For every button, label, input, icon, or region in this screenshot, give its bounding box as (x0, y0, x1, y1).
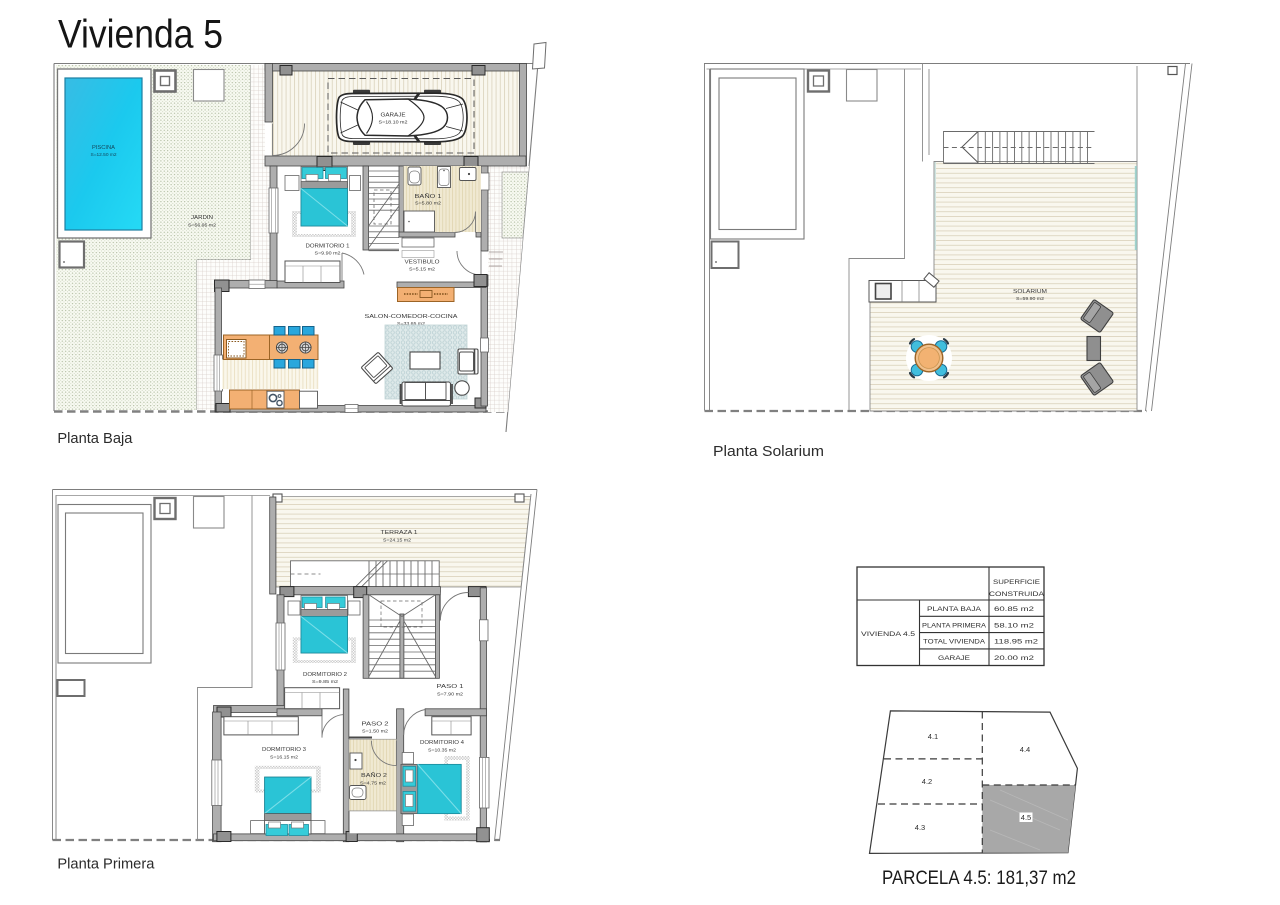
svg-text:DORMITORIO 4: DORMITORIO 4 (420, 740, 464, 746)
svg-text:S=9.85 m2: S=9.85 m2 (312, 679, 339, 684)
svg-text:PLANTA BAJA: PLANTA BAJA (927, 606, 982, 613)
svg-text:S=16.15 m2: S=16.15 m2 (270, 755, 299, 760)
svg-text:S=7.90 m2: S=7.90 m2 (437, 692, 464, 697)
svg-text:S=56.95 m2: S=56.95 m2 (188, 223, 217, 228)
svg-text:BAÑO 1: BAÑO 1 (415, 193, 442, 200)
svg-text:SOLARIUM: SOLARIUM (1013, 289, 1047, 295)
svg-text:PARCELA 4.5: 181,37 m2: PARCELA 4.5: 181,37 m2 (882, 868, 1076, 889)
svg-text:PLANTA PRIMERA: PLANTA PRIMERA (922, 622, 987, 629)
svg-text:JARDIN: JARDIN (191, 215, 213, 221)
svg-text:S=9.90 m2: S=9.90 m2 (315, 251, 342, 256)
svg-text:DORMITORIO 1: DORMITORIO 1 (306, 244, 350, 250)
svg-text:S=59.90 m2: S=59.90 m2 (1016, 296, 1045, 301)
svg-text:S=5.15 m2: S=5.15 m2 (409, 267, 436, 272)
svg-text:VIVIENDA 4.5: VIVIENDA 4.5 (861, 631, 915, 638)
svg-text:S=18.10 m2: S=18.10 m2 (379, 120, 409, 125)
svg-text:PASO 2: PASO 2 (362, 722, 389, 728)
svg-text:S=24.15 m2: S=24.15 m2 (383, 538, 412, 543)
svg-text:BAÑO 2: BAÑO 2 (361, 772, 387, 779)
svg-text:SALON-COMEDOR-COCINA: SALON-COMEDOR-COCINA (365, 314, 459, 320)
svg-text:TERRAZA 1: TERRAZA 1 (381, 530, 418, 536)
svg-text:Planta Baja: Planta Baja (57, 430, 133, 447)
svg-text:S=5.80 m2: S=5.80 m2 (415, 201, 442, 206)
svg-text:S=1.50 m2: S=1.50 m2 (362, 729, 389, 734)
svg-text:CONSTRUIDA: CONSTRUIDA (989, 591, 1045, 598)
svg-text:S=10.35 m2: S=10.35 m2 (428, 748, 457, 753)
svg-text:4.4: 4.4 (1020, 745, 1030, 754)
svg-text:4.5: 4.5 (1021, 813, 1031, 822)
svg-text:PISCINA: PISCINA (92, 145, 116, 151)
svg-text:118.95 m2: 118.95 m2 (994, 639, 1038, 646)
svg-text:20.00 m2: 20.00 m2 (994, 655, 1034, 662)
svg-text:DORMITORIO 3: DORMITORIO 3 (262, 747, 306, 753)
svg-text:DORMITORIO 2: DORMITORIO 2 (303, 672, 347, 678)
svg-text:SUPERFICIE: SUPERFICIE (993, 579, 1041, 586)
svg-text:Vivienda 5: Vivienda 5 (58, 13, 223, 57)
svg-text:PASO 1: PASO 1 (437, 684, 464, 690)
svg-text:Planta Solarium: Planta Solarium (713, 443, 824, 460)
svg-text:58.10 m2: 58.10 m2 (994, 622, 1034, 629)
svg-text:GARAJE: GARAJE (938, 655, 971, 662)
svg-text:S=4.75 m2: S=4.75 m2 (360, 781, 387, 786)
svg-text:4.3: 4.3 (915, 823, 925, 832)
svg-text:4.2: 4.2 (922, 777, 932, 786)
svg-text:4.1: 4.1 (928, 732, 938, 741)
svg-text:Planta Primera: Planta Primera (57, 856, 155, 873)
svg-text:TOTAL VIVIENDA: TOTAL VIVIENDA (923, 639, 986, 646)
svg-text:GARAJE: GARAJE (381, 113, 406, 119)
svg-text:S=12.50 m2: S=12.50 m2 (91, 152, 118, 157)
svg-text:VESTIBULO: VESTIBULO (405, 260, 440, 266)
svg-text:60.85 m2: 60.85 m2 (994, 606, 1034, 613)
